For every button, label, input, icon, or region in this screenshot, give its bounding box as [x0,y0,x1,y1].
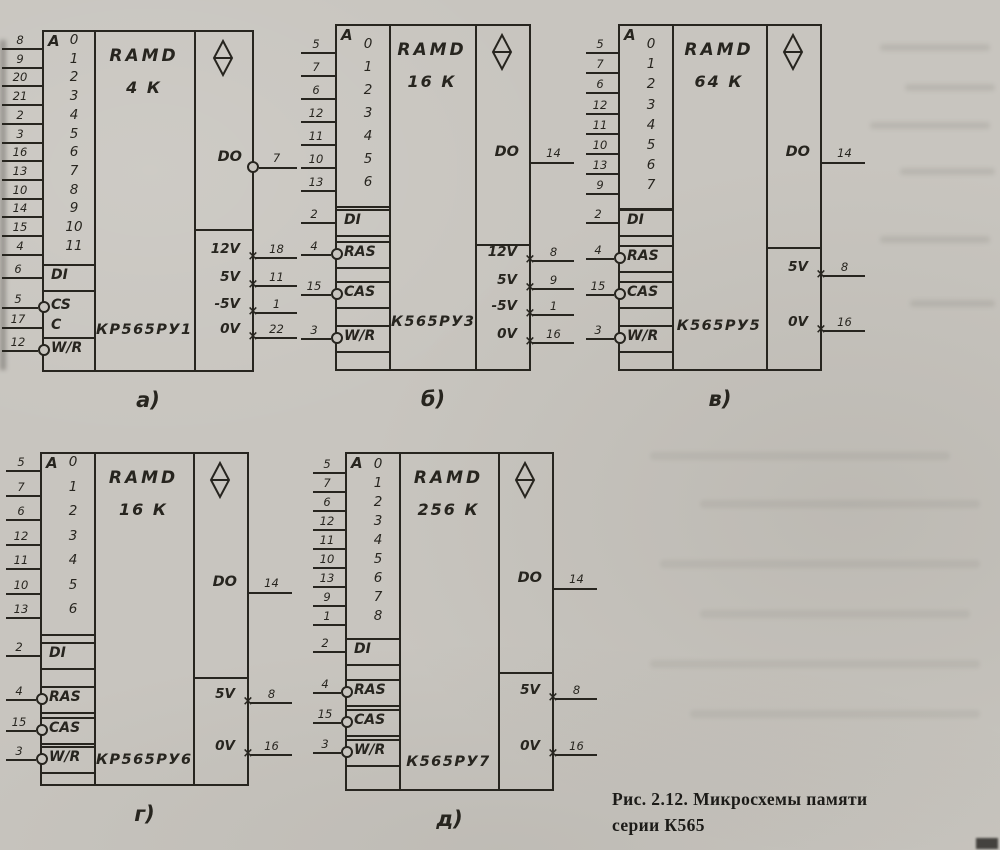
pin-stub [586,173,620,175]
pin-stub [301,98,337,100]
output-label: DO [477,144,519,160]
pin-number: 6 [301,83,331,97]
pin-number: 11 [586,118,614,132]
chip-diagram-k565ru7: A RAMD 256 К К565РУ7 д) 5071621231141051… [345,452,554,791]
address-bit-label: 3 [56,88,92,104]
diagram-letter-label: б) [393,387,473,411]
address-bit-label: 7 [359,589,397,605]
address-bit-label: 0 [349,36,387,52]
diagram-letter-label: в) [680,387,760,411]
control-label: CAS [354,712,397,728]
pin-stub [248,592,292,594]
pin-number: 10 [2,183,38,197]
pin-number: 1 [535,299,572,313]
control-box-line [42,746,94,748]
address-bit-label: 6 [349,174,387,190]
chip-type-label: RAMD [94,46,194,66]
control-label: DI [49,645,92,661]
pin-number: 16 [826,315,863,329]
pin-stub [6,544,42,546]
pin-stub [2,142,44,144]
pin-stub [532,288,574,290]
scan-artifact [880,44,990,51]
control-box-line [347,705,399,707]
pin-stub [823,330,865,332]
pin-stub [555,698,597,700]
inversion-circle [331,288,343,300]
control-box-line [620,281,672,283]
address-bit-label: 6 [54,601,92,617]
address-bit-label: 9 [56,200,92,216]
pin-stub [255,312,297,314]
power-section-line [498,672,552,674]
address-bit-label: 11 [56,238,92,254]
chip-capacity-label: 16 К [389,72,475,91]
pin-stub [532,314,574,316]
chip-capacity-label: 4 К [94,78,194,97]
address-bit-label: 7 [56,163,92,179]
pin-stub [255,285,297,287]
pin-stub [301,121,337,123]
power-label: 5V [196,269,240,285]
pin-stub [2,216,44,218]
pin-stub [6,519,42,521]
address-bit-label: 5 [54,577,92,593]
chip-capacity-label: 64 К [672,72,766,91]
power-section-line [766,247,820,249]
pin-stub [2,277,44,279]
output-label: DO [196,149,242,165]
pin-number: 5 [313,457,341,471]
pin-number: 10 [586,138,614,152]
pin-stub [313,586,347,588]
inversion-circle [341,716,353,728]
scan-artifact [900,168,995,175]
pin-number: 13 [301,175,331,189]
address-bit-label: 5 [359,551,397,567]
pin-stub [2,254,44,256]
pin-stub [6,730,36,732]
pin-stub [586,113,620,115]
power-label: 0V [477,326,517,342]
address-bit-label: 4 [359,532,397,548]
chip-type-label: RAMD [399,468,498,488]
pin-number: 3 [301,323,327,337]
address-bit-label: 8 [359,608,397,624]
ram-qualifier-icon [490,32,514,72]
pin-number: 17 [2,312,34,326]
scan-artifact [660,560,980,568]
pin-number: 14 [253,576,290,590]
figure-caption: Рис. 2.12. Микросхемы памяти серии К565 [612,786,994,838]
pin-stub [2,160,44,162]
pin-stub [313,548,347,550]
address-bit-label: 2 [54,503,92,519]
pin-number: 13 [313,571,341,585]
pin-number: 16 [535,327,572,341]
pin-stub [555,754,597,756]
pin-number: 14 [2,201,38,215]
output-column-divider [194,32,196,370]
pin-number: 10 [313,552,341,566]
address-bit-label: 5 [56,126,92,142]
pin-number: 14 [826,146,863,160]
pin-stub [301,338,331,340]
part-number-label: К565РУ7 [401,754,496,770]
control-box-line [347,638,399,640]
address-column-divider [94,32,96,370]
pin-stub [301,222,337,224]
pin-stub [250,702,292,704]
pin-stub [2,104,44,106]
inversion-circle [614,252,626,264]
chip-diagram-k565ru3: A RAMD 16 К К565РУ3 б) 50716212311410513… [335,24,531,371]
power-label: 12V [477,244,517,260]
chip-type-label: RAMD [389,40,475,60]
output-label: DO [768,144,810,160]
pin-stub [313,529,347,531]
power-label: 0V [768,314,808,330]
pin-number: 12 [586,98,614,112]
pin-stub [586,222,620,224]
control-box-line [337,267,389,269]
pin-stub [6,655,42,657]
control-box-line [620,235,672,237]
control-label: W/R [49,749,92,765]
pin-number: 5 [586,37,614,51]
pin-number: 5 [2,292,34,306]
part-number-label: К565РУ3 [391,314,473,330]
inversion-circle [341,746,353,758]
address-section-line [337,206,389,208]
pin-number: 9 [586,178,614,192]
pin-stub [301,75,337,77]
control-box-line [337,235,389,237]
control-box-line [337,281,389,283]
control-label: W/R [354,742,397,758]
pin-number: 11 [6,553,36,567]
pin-stub [586,338,614,340]
pin-stub [313,722,341,724]
pin-stub [6,568,42,570]
output-column-divider [475,26,477,369]
pin-number: 12 [2,335,34,349]
control-box-line [620,245,672,247]
pin-number: 16 [558,739,595,753]
pin-stub [255,257,297,259]
pin-number: 7 [586,57,614,71]
address-bit-label: 1 [54,479,92,495]
pin-number: 15 [301,279,327,293]
address-bit-label: 6 [632,157,670,173]
power-label: 0V [195,738,235,754]
power-section-line [193,677,247,679]
pin-stub [313,605,347,607]
pin-stub [2,198,44,200]
pin-stub [313,651,347,653]
pin-stub [2,123,44,125]
chip-type-label: RAMD [94,468,193,488]
pin-number: 6 [313,495,341,509]
pin-number: 16 [253,739,290,753]
control-box-line [620,351,672,353]
control-label: W/R [344,328,387,344]
pin-number: 3 [6,744,32,758]
pin-number: 10 [301,152,331,166]
control-box-line [620,209,672,211]
control-box-line [42,686,94,688]
power-label: -5V [477,298,517,314]
pin-number: 9 [2,52,38,66]
address-bit-label: 3 [632,97,670,113]
address-section-line [42,634,94,636]
inversion-circle [38,344,50,356]
scan-artifact [650,660,980,668]
control-box-line [44,264,94,266]
pin-stub [6,495,42,497]
pin-number: 12 [301,106,331,120]
pin-number: 8 [2,33,38,47]
pin-number: 15 [313,707,337,721]
pin-stub [586,72,620,74]
address-bit-label: 2 [632,76,670,92]
chip-capacity-label: 256 К [399,500,498,519]
control-box-line [620,271,672,273]
pin-number: 4 [2,239,38,253]
control-box-line [337,209,389,211]
pin-number: 4 [6,684,32,698]
control-label: DI [627,212,670,228]
control-box-line [620,307,672,309]
scan-artifact [700,500,980,508]
scan-artifact [905,84,995,91]
pin-stub [6,470,42,472]
pin-number: 13 [586,158,614,172]
pin-number: 7 [6,480,36,494]
control-box-line [42,717,94,719]
control-box-line [347,765,399,767]
pin-stub [532,342,574,344]
pin-stub [2,235,44,237]
pin-number: 2 [6,640,32,654]
pin-number: 8 [535,245,572,259]
pin-stub [2,350,38,352]
scan-artifact [700,610,970,618]
pin-number: 4 [301,239,327,253]
inversion-circle [614,332,626,344]
control-box-line [337,325,389,327]
pin-number: 8 [826,260,863,274]
power-label: 0V [500,738,540,754]
pin-stub [586,153,620,155]
pin-stub [313,472,347,474]
pin-number: 1 [258,297,295,311]
pin-stub [6,759,36,761]
address-bit-label: 2 [359,494,397,510]
address-bit-label: 6 [56,144,92,160]
ram-qualifier-icon [781,32,805,72]
part-number-label: КР565РУ1 [96,322,192,338]
power-label: 5V [768,259,808,275]
control-box-line [42,772,94,774]
pin-stub [313,692,341,694]
inversion-circle [38,301,50,313]
pin-number: 6 [2,262,34,276]
control-box-line [337,351,389,353]
pin-stub [259,167,297,169]
pin-stub [6,699,36,701]
pin-stub [586,294,614,296]
control-label: RAS [49,689,92,705]
pin-stub [586,258,614,260]
inversion-circle [614,288,626,300]
ram-qualifier-icon [211,38,235,78]
pin-number: 5 [6,455,36,469]
pin-number: 7 [258,151,295,165]
pin-stub [586,52,620,54]
pin-stub [2,307,38,309]
address-bit-label: 6 [359,570,397,586]
address-column-divider [389,26,391,369]
pin-stub [532,260,574,262]
pin-number: 12 [6,529,36,543]
power-label: 5V [195,686,235,702]
address-bit-label: 5 [632,137,670,153]
pin-stub [301,167,337,169]
address-bit-label: 4 [632,117,670,133]
address-bit-label: 0 [359,456,397,472]
pin-number: 2 [313,636,337,650]
control-label: C [51,317,92,333]
address-bit-label: 4 [56,107,92,123]
pin-stub [6,617,42,619]
pin-stub [313,510,347,512]
pin-stub [6,593,42,595]
control-box-line [44,290,94,292]
pin-number: 15 [586,279,610,293]
power-label: -5V [196,296,240,312]
pin-number: 3 [313,737,337,751]
output-label: DO [500,570,542,586]
control-label: DI [51,267,92,283]
chip-capacity-label: 16 К [94,500,193,519]
address-bit-label: 7 [632,177,670,193]
caption-line-1: Рис. 2.12. Микросхемы памяти [612,786,994,812]
pin-number: 10 [6,578,36,592]
part-number-label: К565РУ5 [674,318,764,334]
pin-number: 9 [313,590,341,604]
pin-number: 14 [535,146,572,160]
pin-number: 11 [301,129,331,143]
chip-diagram-kr565ru6: A RAMD 16 К КР565РУ6 г) 5071621231141051… [40,452,249,786]
address-bit-label: 4 [54,552,92,568]
address-bit-label: 8 [56,182,92,198]
control-box-line [44,337,94,339]
control-box-line [337,307,389,309]
pin-number: 22 [258,322,295,336]
page-number-mark [976,838,998,849]
chip-diagram-k565ru5: A RAMD 64 К К565РУ5 в) 50716212311410513… [618,24,822,371]
control-label: CAS [627,284,670,300]
control-box-line [347,709,399,711]
power-label: 12V [196,241,240,257]
control-label: CAS [344,284,387,300]
pin-number: 14 [558,572,595,586]
inversion-circle [331,332,343,344]
control-label: W/R [51,340,92,356]
address-bit-label: 3 [54,528,92,544]
control-label: RAS [627,248,670,264]
control-box-line [42,743,94,745]
inversion-circle [331,248,343,260]
ram-qualifier-icon [513,460,537,500]
pin-number: 13 [2,164,38,178]
power-label: 0V [196,321,240,337]
pin-stub [301,144,337,146]
pin-stub [301,294,331,296]
pin-stub [586,193,620,195]
pin-number: 3 [2,127,38,141]
control-box-line [620,325,672,327]
pin-number: 15 [2,220,38,234]
pin-number: 4 [586,243,610,257]
address-bit-label: 0 [632,36,670,52]
pin-number: 5 [301,37,331,51]
scan-artifact [880,236,990,243]
pin-number: 2 [2,108,38,122]
pin-stub [255,337,297,339]
address-bit-label: 2 [349,82,387,98]
scan-artifact [870,122,990,129]
address-column-divider [399,454,401,789]
diagram-letter-label: г) [105,802,185,826]
diagram-letter-label: а) [108,388,188,412]
pin-number: 7 [313,476,341,490]
pin-number: 2 [586,207,610,221]
pin-stub [823,275,865,277]
pin-stub [821,162,865,164]
scan-artifact [690,710,980,718]
pin-number: 15 [6,715,32,729]
chip-type-label: RAMD [672,40,766,60]
inversion-circle [341,686,353,698]
scan-artifact [910,300,995,307]
pin-number: 12 [313,514,341,528]
inversion-circle [36,753,48,765]
control-label: CS [51,297,92,313]
diagram-letter-label: д) [410,807,490,831]
address-bit-label: 2 [56,69,92,85]
pin-stub [313,567,347,569]
address-bit-label: 1 [359,475,397,491]
address-bit-label: 4 [349,128,387,144]
pin-stub [313,752,341,754]
pin-stub [586,92,620,94]
pin-number: 8 [253,687,290,701]
pin-stub [553,588,597,590]
scan-artifact [650,452,950,460]
address-bit-label: 10 [56,219,92,235]
caption-line-2: серии К565 [612,812,994,838]
address-bit-label: 3 [359,513,397,529]
part-number-label: КР565РУ6 [96,752,191,768]
pin-stub [2,85,44,87]
pin-number: 11 [313,533,341,547]
pin-number: 20 [2,70,38,84]
control-label: W/R [627,328,670,344]
pin-stub [301,254,331,256]
control-box-line [347,664,399,666]
